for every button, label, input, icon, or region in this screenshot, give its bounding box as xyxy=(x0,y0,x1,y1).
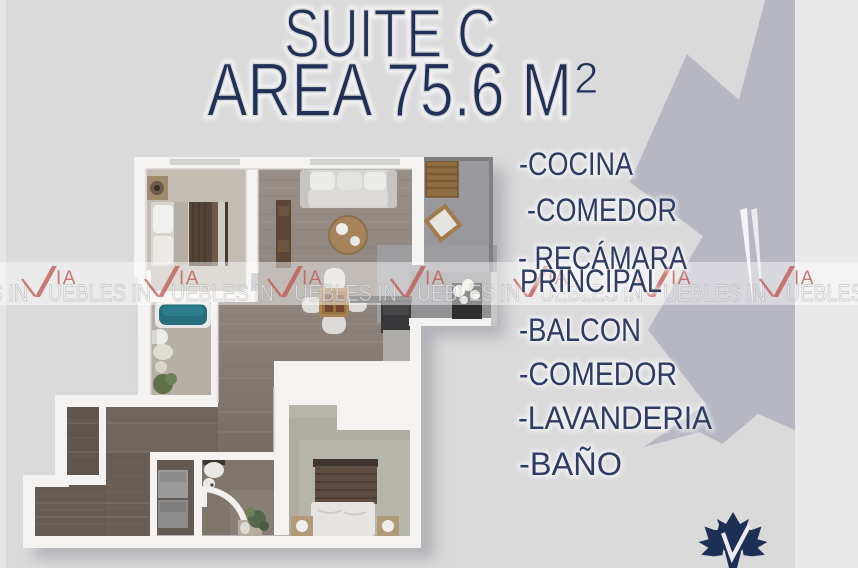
svg-text:-LAVANDERIA: -LAVANDERIA xyxy=(518,400,713,436)
svg-text:-BAÑO: -BAÑO xyxy=(519,446,622,482)
svg-text:-COMEDOR: -COMEDOR xyxy=(519,356,677,392)
svg-text:IA: IA xyxy=(425,268,446,289)
svg-text:IA: IA xyxy=(56,268,77,289)
svg-text:UEBLES IN: UEBLES IN xyxy=(0,280,28,307)
svg-text:-COCINA: -COCINA xyxy=(519,146,634,182)
svg-text:PRINCIPAL: PRINCIPAL xyxy=(520,263,662,299)
svg-text:IA: IA xyxy=(794,268,815,289)
svg-text:-COMEDOR: -COMEDOR xyxy=(527,192,677,228)
svg-text:2: 2 xyxy=(574,54,598,103)
svg-text:IA: IA xyxy=(179,268,200,289)
svg-text:IA: IA xyxy=(302,268,323,289)
svg-text:-BALCON: -BALCON xyxy=(519,312,641,348)
svg-text:AREA 75.6 M: AREA 75.6 M xyxy=(207,48,572,133)
